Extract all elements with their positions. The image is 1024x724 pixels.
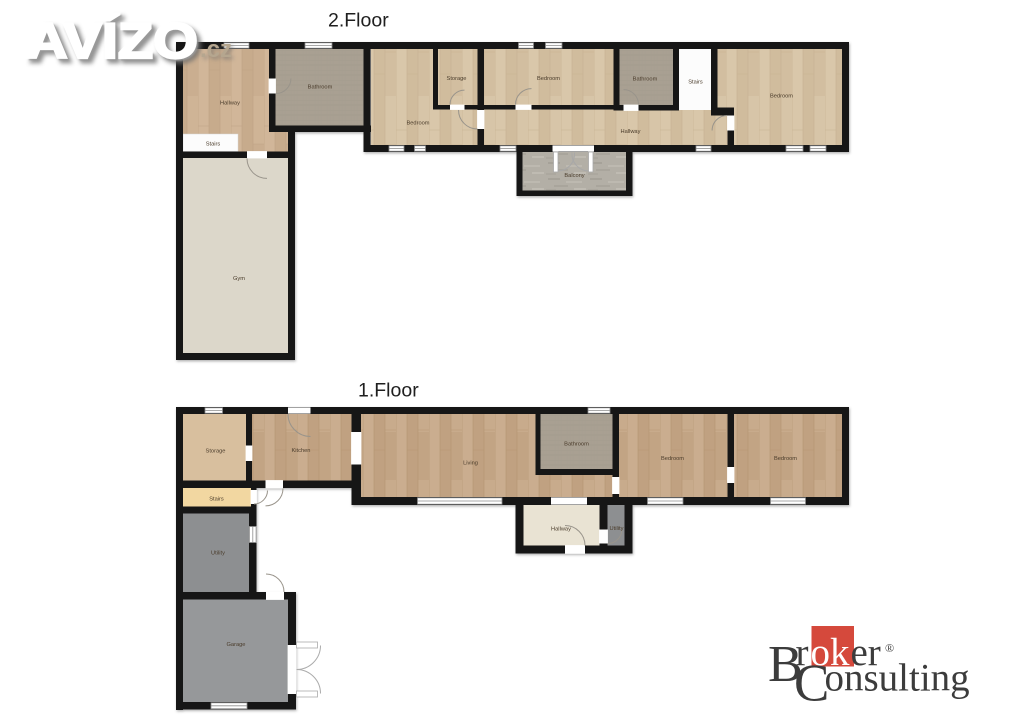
svg-text:®: ® <box>885 641 894 655</box>
svg-text:Bedroom: Bedroom <box>537 76 560 82</box>
svg-text:Utility: Utility <box>211 551 225 557</box>
svg-text:Stairs: Stairs <box>206 142 221 148</box>
svg-text:.cz: .cz <box>200 36 232 63</box>
svg-text:Bedroom: Bedroom <box>406 121 429 127</box>
svg-text:Storage: Storage <box>447 76 467 82</box>
svg-text:Hallway: Hallway <box>551 527 571 533</box>
svg-text:Bedroom: Bedroom <box>661 456 684 462</box>
svg-text:Kitchen: Kitchen <box>292 448 311 454</box>
svg-text:Hallway: Hallway <box>621 129 641 135</box>
svg-text:Gym: Gym <box>233 276 245 282</box>
svg-text:1.Floor: 1.Floor <box>358 380 419 402</box>
svg-text:2.Floor: 2.Floor <box>328 10 389 32</box>
svg-text:Balcony: Balcony <box>564 173 584 179</box>
svg-text:Garage: Garage <box>227 642 246 648</box>
svg-text:Storage: Storage <box>206 449 226 455</box>
svg-text:AVÍZO: AVÍZO <box>26 13 198 69</box>
svg-text:Bathroom: Bathroom <box>564 442 589 448</box>
svg-text:Bedroom: Bedroom <box>770 94 793 100</box>
svg-text:onsulting: onsulting <box>825 657 970 700</box>
svg-text:Stairs: Stairs <box>209 497 224 503</box>
svg-text:Living: Living <box>463 461 478 467</box>
svg-text:Bedroom: Bedroom <box>774 456 797 462</box>
svg-text:Bathroom: Bathroom <box>633 77 658 83</box>
svg-text:Stairs: Stairs <box>688 80 703 86</box>
svg-text:Utility: Utility <box>610 526 624 532</box>
svg-text:Hallway: Hallway <box>220 101 240 107</box>
svg-text:Bathroom: Bathroom <box>308 85 333 91</box>
